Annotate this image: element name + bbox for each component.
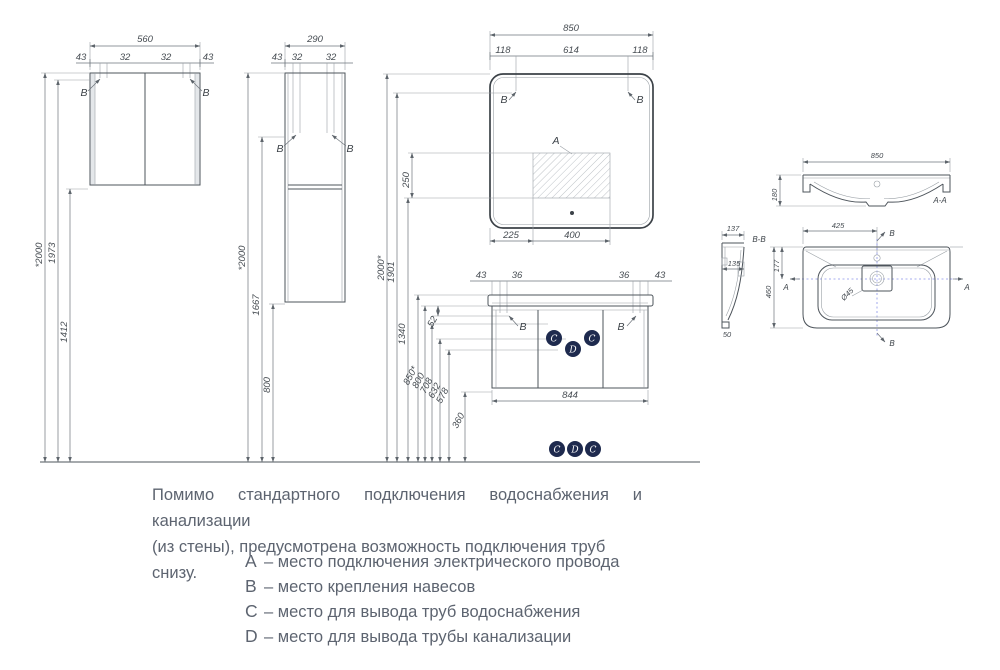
mount-label-b: B — [346, 143, 353, 155]
mount-label-b: B — [80, 87, 87, 99]
mount-label-b: B — [617, 321, 624, 333]
dim-mirror-width: 850 — [563, 23, 580, 34]
dim-plan-drain: Ø45 — [838, 285, 856, 303]
dim-wall-edge-r: 43 — [203, 52, 214, 63]
dim-tall-edge-l: 43 — [272, 52, 283, 63]
section-aa-label: A-A — [932, 196, 946, 205]
dim-wall-h-bottom: 1412 — [59, 321, 70, 343]
legend-text-c: – место для вывода труб водоснабжения — [264, 603, 580, 622]
note-line-1: Помимо стандартного подключения водоснаб… — [152, 482, 642, 534]
electric-area-hatch — [533, 153, 610, 198]
dim-mirror-h-mount: 1901 — [386, 261, 397, 282]
mount-label-b: B — [500, 94, 507, 106]
section-bb-view: 137 B-B 135 50 — [722, 224, 766, 339]
dim-mirror-bottom-l: 225 — [502, 230, 520, 241]
dim-plan-depth: 460 — [764, 285, 773, 298]
dim-wall-hinge-l: 32 — [120, 52, 131, 63]
mount-label-b: B — [519, 321, 526, 333]
legend-key-d: D — [245, 626, 264, 647]
vanity-view: 43 36 36 43 B B C D C — [401, 270, 672, 462]
dim-tall-width: 290 — [306, 34, 324, 45]
tall-cabinet-view: 290 43 32 32 B B *2000 1667 800 — [237, 34, 354, 462]
legend-text-a: – место подключения электрического прово… — [264, 553, 619, 572]
section-cut-b: B — [889, 229, 895, 238]
legend-text-b: – место крепления навесов — [264, 578, 475, 597]
dim-tall-h-total: *2000 — [237, 245, 248, 271]
dim-wall-width: 560 — [137, 34, 154, 45]
sensor-dot — [570, 211, 574, 215]
dim-vanity-edge-l: 43 — [476, 270, 487, 281]
legend-item-a: A – место подключения электрического про… — [245, 551, 619, 576]
mount-label-b: B — [636, 94, 643, 106]
dim-mirror-edge-l: 118 — [495, 45, 511, 56]
dim-wall-hinge-r: 32 — [161, 52, 172, 63]
dim-bb-depth: 137 — [727, 224, 740, 233]
dim-mirror-h-area-bottom: 1340 — [397, 323, 408, 345]
dim-mirror-center: 614 — [563, 45, 579, 56]
marker-letter-c: C — [551, 335, 558, 345]
dim-tall-hinge-r: 32 — [326, 52, 337, 63]
electric-label-a: A — [551, 135, 559, 147]
legend-key-b: B — [245, 576, 264, 597]
marker-letter-d: D — [570, 446, 578, 456]
dim-mirror-bottom-c: 400 — [564, 230, 581, 241]
dim-wall-edge-l: 43 — [76, 52, 87, 63]
section-aa-view: 850 180 A-A — [770, 151, 950, 206]
legend-item-c: C – место для вывода труб водоснабжения — [245, 601, 619, 626]
dim-tall-hinge-l: 32 — [292, 52, 303, 63]
section-cut-b: B — [889, 339, 895, 348]
dim-vanity-hinge-l: 36 — [512, 270, 523, 281]
dim-vanity-width: 844 — [562, 390, 578, 401]
mirror-view: 850 118 614 118 B B A 225 400 — [376, 23, 653, 462]
marker-letter-d: D — [568, 346, 576, 356]
marker-letter-c: C — [590, 446, 597, 456]
legend-item-d: D – место для вывода трубы канализации — [245, 626, 619, 651]
section-bb-label: B-B — [752, 235, 766, 244]
dim-bb-foot: 50 — [723, 330, 732, 339]
technical-drawing: 560 43 32 32 43 B B *2000 1973 1412 — [0, 0, 1000, 470]
legend-key-a: A — [245, 551, 264, 572]
marker-letter-c: C — [554, 446, 561, 456]
mount-label-b: B — [276, 143, 283, 155]
legend-item-b: B – место крепления навесов — [245, 576, 619, 601]
legend-text-d: – место для вывода трубы канализации — [264, 628, 571, 647]
marker-letter-c: C — [589, 335, 596, 345]
section-cut-a: A — [782, 283, 788, 292]
dim-plan-front: 177 — [772, 259, 781, 272]
dim-tall-h-bottom: 800 — [262, 376, 273, 393]
dim-vanity-hinge-r: 36 — [619, 270, 630, 281]
legend-key-c: C — [245, 601, 264, 622]
dim-mirror-h-area: 250 — [401, 171, 412, 189]
legend: A – место подключения электрического про… — [245, 551, 619, 651]
dim-wall-h-total: *2000 — [34, 242, 45, 268]
dim-aa-width: 850 — [871, 151, 884, 160]
wall-cabinet-view: 560 43 32 32 43 B B *2000 1973 1412 — [34, 34, 214, 462]
dim-wall-h-mount: 1973 — [47, 242, 58, 264]
dim-aa-height: 180 — [770, 188, 779, 201]
dim-bb-mid: 135 — [728, 259, 741, 268]
installation-drawing-page: 560 43 32 32 43 B B *2000 1973 1412 — [0, 0, 1000, 670]
dim-tall-h-mount: 1667 — [251, 294, 262, 316]
dim-mirror-edge-r: 118 — [632, 45, 648, 56]
dim-plan-half-width: 425 — [832, 221, 845, 230]
dim-vanity-edge-r: 43 — [655, 270, 666, 281]
mount-label-b: B — [202, 87, 209, 99]
section-cut-a: A — [963, 283, 969, 292]
plan-view: 425 Ø45 B B A A 460 177 — [764, 221, 970, 348]
